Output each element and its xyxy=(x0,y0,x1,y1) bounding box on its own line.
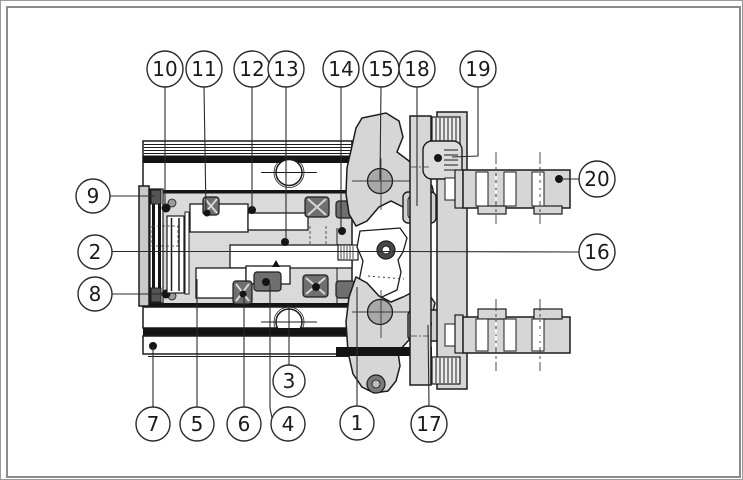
flange-top-thread xyxy=(432,117,460,144)
cap-screw-upper xyxy=(162,204,171,213)
magnet-upper xyxy=(151,190,161,204)
gripper-section-drawing: 1234567891011121314151617181920 xyxy=(0,0,743,480)
callout-label-17: 17 xyxy=(416,412,441,436)
callout-label-20: 20 xyxy=(584,167,609,191)
flange-bottom-thread xyxy=(432,357,460,384)
callout-label-5: 5 xyxy=(191,412,204,436)
body-top-stripes xyxy=(143,145,352,164)
callout-label-11: 11 xyxy=(191,57,216,81)
callout-label-12: 12 xyxy=(239,57,264,81)
magnet-lower xyxy=(151,288,161,302)
callout-label-4: 4 xyxy=(282,412,295,436)
callout-label-1: 1 xyxy=(351,411,364,435)
callout-label-19: 19 xyxy=(465,57,490,81)
callout-label-7: 7 xyxy=(147,412,160,436)
callout-label-2: 2 xyxy=(89,240,102,264)
callout-label-13: 13 xyxy=(273,57,298,81)
upper-finger xyxy=(455,152,570,224)
callout-label-9: 9 xyxy=(87,184,100,208)
callout-label-15: 15 xyxy=(368,57,393,81)
callout-label-3: 3 xyxy=(283,369,296,393)
leader-line-16 xyxy=(392,252,579,253)
callout-label-8: 8 xyxy=(89,282,102,306)
callout-label-14: 14 xyxy=(328,57,353,81)
callout-label-18: 18 xyxy=(404,57,429,81)
callout-label-10: 10 xyxy=(152,57,177,81)
callout-label-16: 16 xyxy=(584,240,609,264)
diagram-canvas: 1234567891011121314151617181920 xyxy=(0,0,743,480)
callout-label-6: 6 xyxy=(238,412,251,436)
lower-finger xyxy=(455,299,570,371)
